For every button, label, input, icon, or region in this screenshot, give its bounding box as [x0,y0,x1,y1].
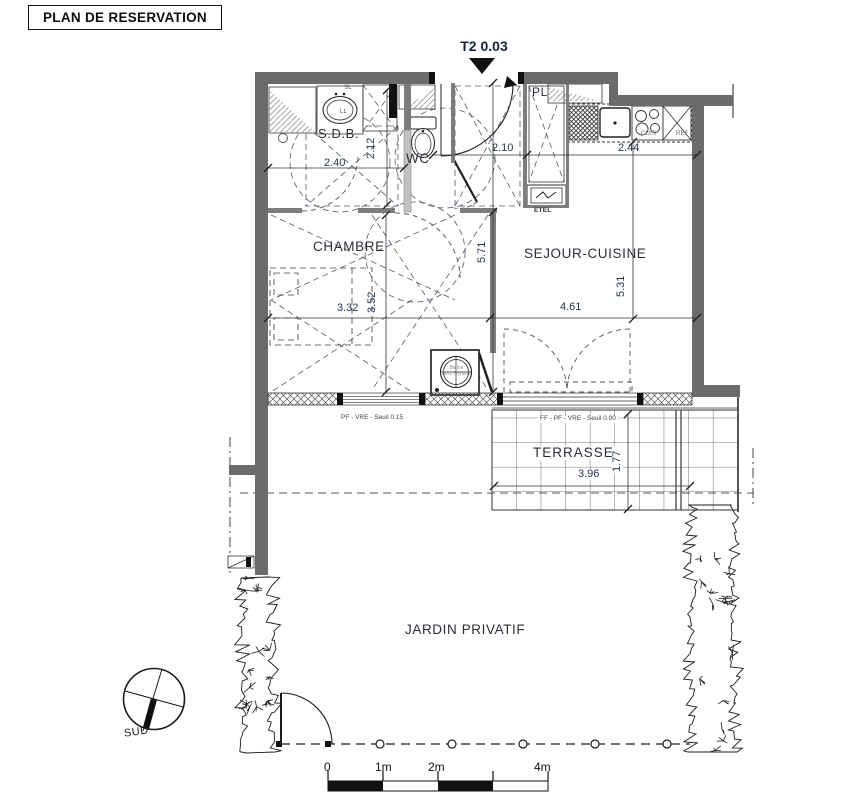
compass-icon [124,669,185,732]
bathroom-counter [269,87,316,133]
dim-sdb-width: 2.40 [324,158,345,169]
scale-tick-2m: 2m [428,760,445,774]
etel-box [527,185,566,206]
garden-fence [276,740,690,748]
garden-gate [281,693,332,744]
facade [268,393,692,405]
dim-kitchen: 2.44 [618,143,639,154]
room-label-sdb: S.D.B. [318,127,359,140]
wall-vent-box [228,556,254,568]
room-label-pl: PL [532,86,548,98]
sejour-threshold [500,393,643,405]
chambre-door-swing [395,213,460,278]
scale-bar [328,771,548,791]
label-seuil-chambre: PF - VRE - Seuil 0.15 [341,415,403,422]
scale-tick-0: 0 [324,760,331,774]
dim-terrasse-depth: 1.77 [612,449,623,474]
unit-label: T2 0.03 [452,38,516,54]
room-label-jardin: JARDIN PRIVATIF [405,623,525,637]
label-lave-linge: LL [340,109,347,115]
room-label-wc: WC [406,152,430,166]
label-cuisiniere: CUIS [641,131,656,137]
dim-sdb-depth: 2.12 [366,138,377,159]
room-label-chambre: CHAMBRE [313,240,385,254]
floor-plan: PLAN DE RESERVATION T2 0.03 S.D.B. WC PL… [0,0,861,800]
scale-tick-1m: 1m [375,760,392,774]
dim-sejour-depth: 5.31 [616,276,627,297]
floor-plan-drawing [0,0,861,800]
dim-entry: 2.10 [492,143,513,154]
label-seche-linge: SL [344,85,352,91]
dim-sejour-width: 4.61 [560,302,581,313]
room-label-terrasse: TERRASSE [531,446,616,460]
label-water-heater: Ballon Aéro Dynam. [440,365,473,377]
dim-terrasse-width: 3.96 [576,469,601,480]
dim-chambre-width: 3.32 [337,303,358,314]
scale-tick-4m: 4m [534,760,551,774]
label-refrigerateur: REF [676,131,689,137]
dim-chambre-depth: 3.52 [367,292,378,313]
label-seuil-sejour: FF - PF - VRE - Seuil 0.00 [538,416,618,423]
kitchen-hood [548,84,602,103]
plan-title: PLAN DE RESERVATION [29,6,221,29]
room-label-sejour: SEJOUR-CUISINE [524,247,646,261]
dim-depth: 5.71 [477,242,488,263]
label-etel: ETEL [534,208,551,215]
ceiling-light-icon [279,134,288,143]
entrance-arrow-icon [469,58,495,74]
kitchen-sink-icon [600,108,630,137]
plan-title-box: PLAN DE RESERVATION [28,5,222,30]
sejour-french-door [504,329,632,392]
